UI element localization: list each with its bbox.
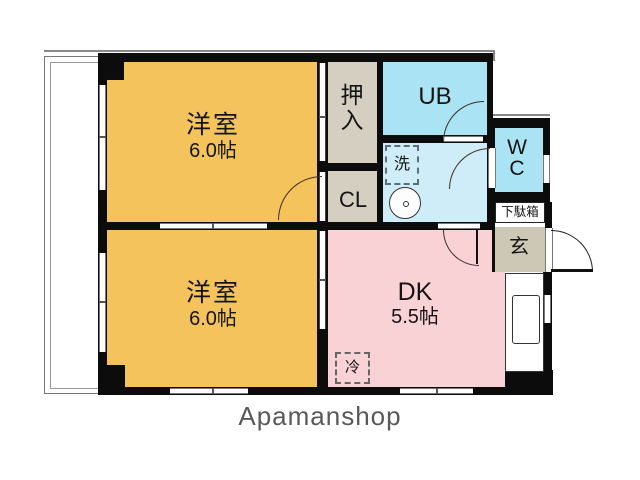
refrigerator-label: 冷: [345, 360, 360, 377]
bedroom-top-name: 洋室: [133, 112, 293, 140]
washing-machine-drum-icon: [389, 187, 421, 219]
wall-oshiire-cl-divider: [317, 163, 383, 171]
shoe-box-label: 下駄箱: [501, 206, 539, 220]
wall-wc-top: [487, 118, 550, 128]
washer-dot: [403, 201, 409, 207]
window-tick: [99, 136, 106, 138]
oshiire-sliding-door: [319, 63, 326, 161]
washroom-door-leaf: [476, 230, 478, 264]
wc-char-1: W: [503, 136, 531, 159]
wall-corner-topleft: [100, 53, 124, 80]
shoe-box: 下駄箱: [495, 202, 545, 223]
oshiire-slider-tick: [319, 116, 326, 118]
refrigerator-box: 冷: [335, 352, 370, 384]
wall-middle-horizontal: [98, 222, 495, 230]
ub-label: UB: [395, 84, 475, 110]
window-kitchen-right: [544, 295, 551, 323]
bedroom-bottom-size: 6.0帖: [133, 308, 293, 330]
exterior-offset-line-corner: [493, 50, 495, 61]
dk-size: 5.5帖: [345, 306, 485, 328]
cl-label: CL: [326, 188, 380, 212]
wall-top: [100, 53, 493, 62]
wall-wc-bottom: [487, 192, 550, 202]
window-tick: [212, 388, 214, 394]
bedroom-top-size: 6.0帖: [133, 140, 293, 162]
washroom-door-opening: [438, 223, 480, 229]
bedroom-bottom-name: 洋室: [133, 280, 293, 308]
window-wc-right: [543, 155, 550, 183]
washing-machine-box: 洗: [385, 145, 419, 185]
wall-genkan-left: [492, 223, 495, 272]
wall-corner-bottomright: [505, 370, 553, 395]
washing-machine-label: 洗: [394, 156, 410, 174]
wall-shoebox-right: [545, 202, 552, 228]
dk-name: DK: [345, 279, 485, 307]
wc-char-2: C: [503, 157, 531, 180]
entrance-label: 玄: [505, 236, 533, 258]
brand-logo-text: Apamanshop: [180, 401, 460, 432]
window-bedroom-bottom-south: [170, 388, 248, 394]
floorplan-canvas: 洗 冷 下駄箱 洋室 6.0帖 洋室 6.0帖 DK 5.5帖 UB 押 入 C…: [0, 0, 640, 480]
entrance-door-swing-arc: [551, 230, 593, 272]
fusuma-tick: [212, 223, 214, 229]
oshiire-char-1: 押: [338, 83, 366, 108]
window-tick: [99, 301, 106, 303]
oshiire-char-2: 入: [338, 108, 366, 133]
balcony-inner-line: [50, 62, 100, 389]
dk-slider-tick: [319, 279, 326, 281]
window-tick: [436, 388, 438, 394]
exterior-offset-line-wc: [493, 114, 550, 116]
entrance-door-leaf: [551, 269, 593, 272]
kitchen-sink: [512, 295, 540, 344]
exterior-offset-line-top: [44, 50, 494, 52]
